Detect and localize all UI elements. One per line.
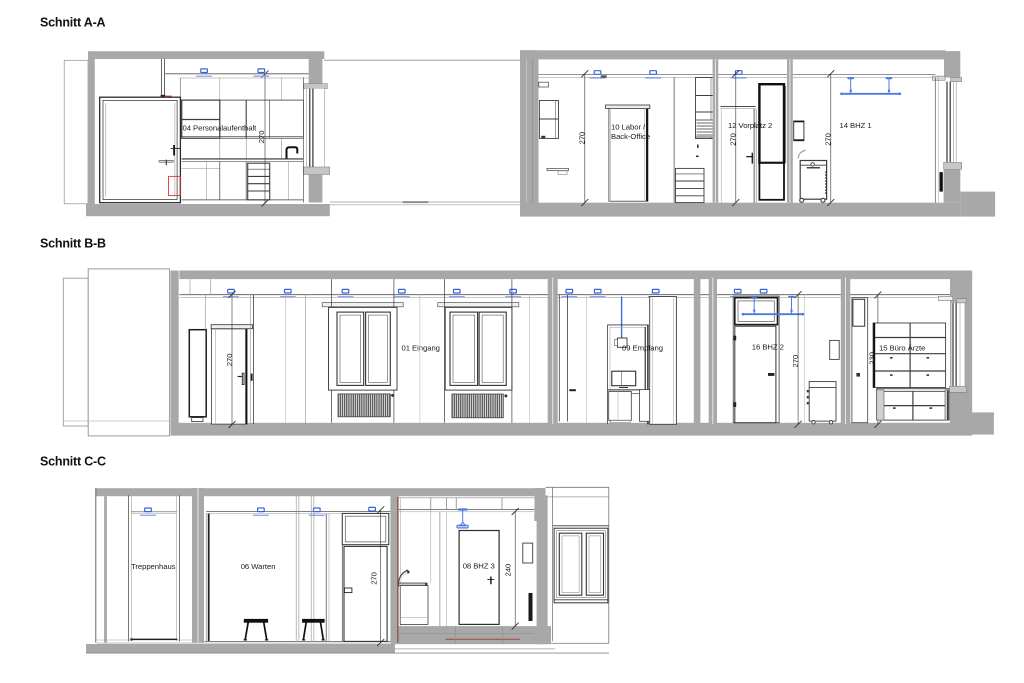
svg-text:15 Büro Ärzte: 15 Büro Ärzte: [879, 344, 925, 353]
svg-text:230: 230: [868, 352, 877, 365]
svg-text:Schnitt C-C: Schnitt C-C: [40, 455, 106, 469]
svg-text:270: 270: [370, 572, 379, 585]
svg-text:270: 270: [578, 132, 587, 145]
svg-text:270: 270: [225, 354, 234, 367]
svg-text:14 BHZ 1: 14 BHZ 1: [840, 121, 872, 130]
svg-text:Schnitt B-B: Schnitt B-B: [40, 237, 106, 251]
svg-text:04 Personalaufenthalt: 04 Personalaufenthalt: [183, 124, 258, 133]
svg-text:10 Labor /: 10 Labor /: [611, 123, 646, 132]
svg-text:16 BHZ 2: 16 BHZ 2: [752, 343, 784, 352]
svg-text:08 BHZ 3: 08 BHZ 3: [463, 562, 495, 571]
svg-text:Back-Office: Back-Office: [611, 132, 650, 141]
svg-text:270: 270: [257, 131, 266, 144]
svg-text:Schnitt A-A: Schnitt A-A: [40, 16, 106, 30]
svg-text:Treppenhaus: Treppenhaus: [131, 562, 176, 571]
svg-text:270: 270: [791, 355, 800, 368]
svg-text:09 Empfang: 09 Empfang: [622, 344, 663, 353]
svg-text:270: 270: [824, 133, 833, 146]
svg-text:12 Vorplatz 2: 12 Vorplatz 2: [728, 121, 772, 130]
svg-text:270: 270: [729, 133, 738, 146]
svg-text:06 Warten: 06 Warten: [241, 562, 276, 571]
svg-text:240: 240: [504, 564, 513, 577]
svg-text:01 Eingang: 01 Eingang: [402, 344, 440, 353]
